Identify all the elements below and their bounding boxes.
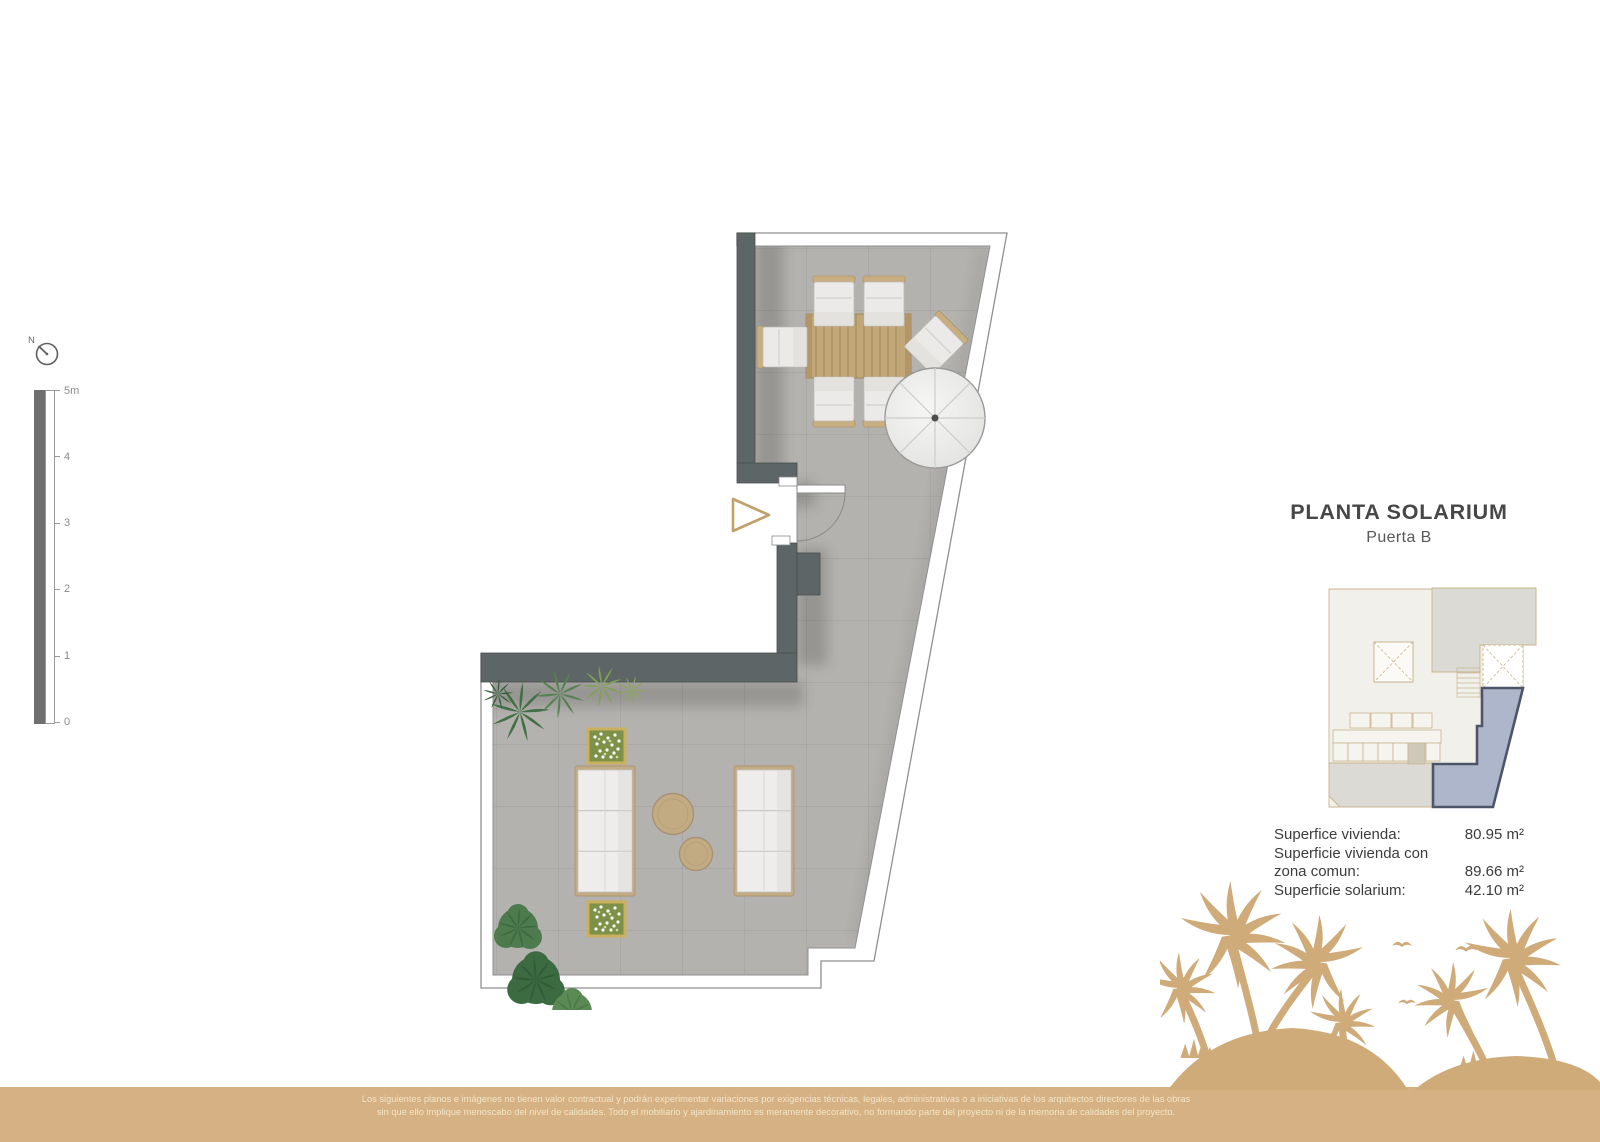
planter-bottom [588, 902, 625, 936]
scale-label-3: 3 [64, 517, 70, 529]
coffee-table-large [653, 794, 694, 835]
scale-label-2: 2 [64, 583, 70, 595]
sun-lounger-left [575, 766, 635, 896]
elevator-shaft-icon-left [1374, 642, 1413, 682]
key-plan [1300, 580, 1545, 815]
keyplan-gray-bottom-left [1329, 763, 1433, 807]
page: N 5m 4 3 2 1 0 [0, 0, 1600, 1142]
coffee-table-small [680, 838, 713, 871]
chair-top-right [863, 276, 905, 326]
elevator-shaft-icon-right [1483, 645, 1523, 688]
chair-bottom-left [813, 377, 855, 427]
chair-top-left [813, 276, 855, 326]
door-leaf [797, 485, 845, 493]
area-value: 80.95 m² [1465, 826, 1524, 845]
plan-title: PLANTA SOLARIUM [1258, 500, 1540, 525]
palm-decoration-icon [1160, 875, 1600, 1090]
bird-icon [1392, 942, 1412, 947]
sun-lounger-right [734, 766, 794, 896]
planter-top [588, 729, 625, 763]
scale-label-1: 1 [64, 650, 70, 662]
scale-bar-strip [45, 390, 55, 724]
north-label: N [28, 335, 35, 346]
scale-label-0: 0 [64, 716, 70, 728]
area-row: Superfice vivienda: 80.95 m² [1274, 826, 1524, 845]
area-label: Superfice vivienda: [1274, 826, 1401, 845]
plan-subtitle: Puerta B [1258, 529, 1540, 547]
scale-bar: 5m 4 3 2 1 0 [34, 390, 104, 724]
north-compass-icon: N [22, 330, 68, 372]
parasol-icon [885, 368, 985, 468]
title-block: PLANTA SOLARIUM Puerta B [1258, 500, 1540, 547]
bird-icon [1398, 1000, 1416, 1005]
disclaimer-line-1: Los siguientes planos e imágenes no tien… [0, 1093, 1576, 1106]
scale-bar-fill [34, 390, 45, 724]
floor-plan [440, 200, 1040, 1010]
scale-label-5m: 5m [64, 385, 79, 397]
chair-left [757, 326, 807, 368]
scale-label-4: 4 [64, 451, 70, 463]
disclaimer: Los siguientes planos e imágenes no tien… [0, 1093, 1576, 1119]
disclaimer-line-2: sin que ello implique menoscabo del nive… [0, 1106, 1576, 1119]
